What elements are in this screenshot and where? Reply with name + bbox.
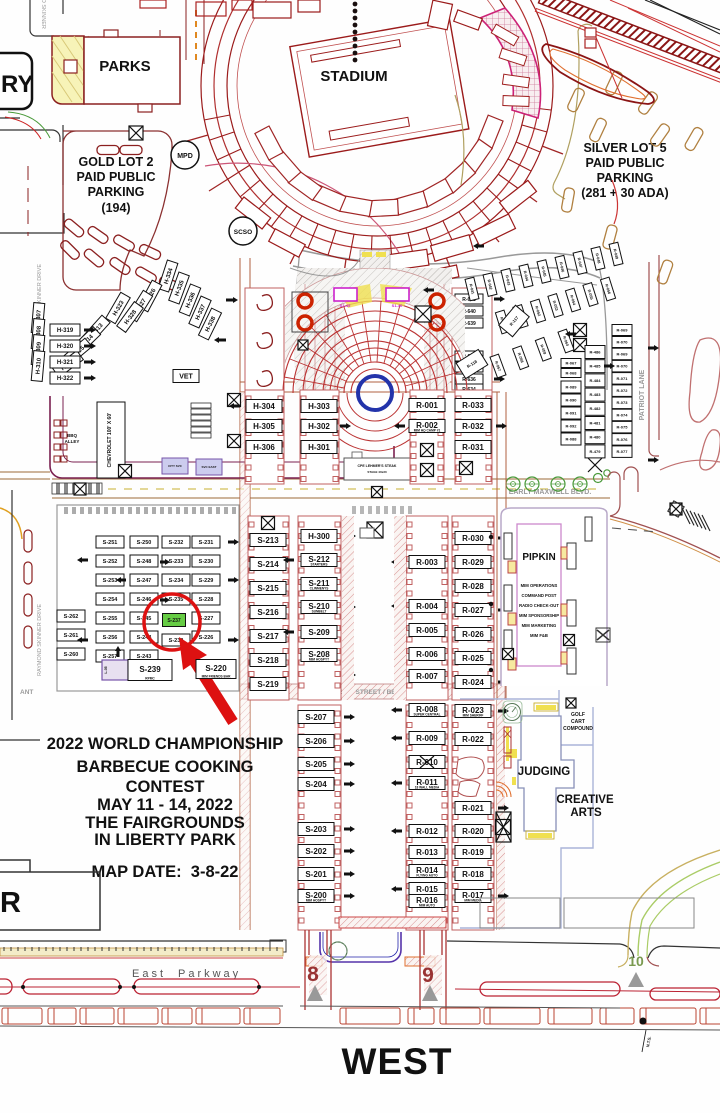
svg-text:PATRIOT LANE: PATRIOT LANE — [639, 369, 646, 420]
svg-text:SUNBELT: SUNBELT — [312, 610, 327, 614]
svg-text:R-484: R-484 — [590, 378, 602, 383]
svg-text:MAP DATE: 3-8-22: MAP DATE: 3-8-22 — [91, 863, 238, 881]
svg-text:S-253: S-253 — [103, 578, 118, 584]
svg-text:Parkway: Parkway — [178, 968, 241, 980]
svg-text:R-074: R-074 — [617, 412, 629, 417]
svg-text:SCSO: SCSO — [234, 229, 252, 236]
svg-text:R-073: R-073 — [617, 400, 629, 405]
svg-text:R-072: R-072 — [617, 388, 629, 393]
svg-text:GOLD LOT 2: GOLD LOT 2 — [79, 155, 154, 169]
svg-text:S-226: S-226 — [199, 635, 214, 641]
svg-text:MIM SHERIFF: MIM SHERIFF — [463, 714, 484, 718]
svg-text:S-217: S-217 — [257, 632, 279, 641]
svg-text:MIM HOSPYT: MIM HOSPYT — [306, 899, 326, 903]
svg-text:S-237: S-237 — [167, 618, 181, 624]
svg-text:CHEVROLET 100' X 60': CHEVROLET 100' X 60' — [107, 413, 113, 468]
svg-text:R-070: R-070 — [617, 339, 629, 344]
svg-text:RADIO CHECK-OUT: RADIO CHECK-OUT — [519, 603, 559, 608]
svg-text:R: R — [0, 887, 21, 919]
svg-text:8: 8 — [307, 963, 319, 986]
svg-text:MAY 11 - 14, 2022: MAY 11 - 14, 2022 — [97, 796, 233, 814]
svg-text:PARKING: PARKING — [88, 185, 145, 199]
svg-text:S-203: S-203 — [305, 825, 327, 834]
svg-text:R-069: R-069 — [617, 327, 629, 332]
svg-text:R-033: R-033 — [462, 401, 484, 410]
svg-text:S-247: S-247 — [137, 578, 152, 584]
svg-text:R-015: R-015 — [416, 885, 438, 894]
svg-text:(281 + 30 ADA): (281 + 30 ADA) — [581, 186, 668, 200]
svg-text:S-254: S-254 — [103, 597, 119, 603]
svg-text:R-028: R-028 — [462, 582, 484, 591]
svg-text:S-250: S-250 — [137, 540, 152, 546]
svg-text:S-204: S-204 — [305, 780, 327, 789]
svg-text:R-009: R-009 — [416, 734, 438, 743]
svg-text:EARLY MAXWELL BLVD.: EARLY MAXWELL BLVD. — [509, 489, 592, 496]
svg-text:MIM OPERATIONS: MIM OPERATIONS — [521, 583, 558, 588]
svg-text:(194): (194) — [101, 201, 130, 215]
svg-text:L-05: L-05 — [104, 666, 108, 673]
svg-text:THE FAIRGROUNDS: THE FAIRGROUNDS — [85, 814, 245, 832]
svg-text:MIM FRIENDS BAR: MIM FRIENDS BAR — [202, 675, 232, 679]
svg-text:H-301: H-301 — [308, 443, 330, 452]
svg-text:H-322: H-322 — [57, 376, 74, 382]
svg-text:RAYMOND SKINNER: RAYMOND SKINNER — [40, 0, 46, 29]
svg-text:S-234: S-234 — [169, 578, 185, 584]
svg-text:9: 9 — [422, 964, 434, 987]
svg-text:R-071: R-071 — [617, 376, 629, 381]
svg-text:S-239: S-239 — [139, 665, 161, 674]
svg-text:R-486: R-486 — [590, 349, 602, 354]
svg-text:CART: CART — [571, 719, 585, 725]
svg-text:VET: VET — [179, 374, 193, 381]
svg-text:S-219: S-219 — [257, 680, 279, 689]
svg-text:H-306: H-306 — [253, 443, 275, 452]
svg-text:R-027: R-027 — [462, 606, 484, 615]
svg-text:R-479: R-479 — [590, 449, 602, 454]
svg-text:MIM MARKETING: MIM MARKETING — [522, 623, 557, 628]
svg-text:R-022: R-022 — [462, 735, 484, 744]
svg-text:R-483: R-483 — [590, 392, 602, 397]
svg-text:R-076: R-076 — [617, 437, 629, 442]
svg-text:R-480: R-480 — [590, 435, 602, 440]
svg-text:RY: RY — [1, 71, 33, 98]
svg-text:S-228: S-228 — [199, 597, 214, 603]
svg-text:S-201: S-201 — [305, 870, 327, 879]
svg-text:S-206: S-206 — [305, 737, 327, 746]
svg-text:R-075: R-075 — [617, 425, 629, 430]
svg-text:S-230: S-230 — [199, 559, 214, 565]
svg-text:H-320: H-320 — [57, 344, 74, 350]
svg-text:S-256: S-256 — [103, 635, 118, 641]
svg-text:S-235: S-235 — [169, 597, 184, 603]
svg-text:R-077: R-077 — [617, 449, 629, 454]
svg-text:R-021: R-021 — [462, 804, 484, 813]
svg-text:S-233: S-233 — [169, 559, 184, 565]
svg-text:S-209: S-209 — [308, 628, 330, 637]
svg-text:S-260: S-260 — [64, 652, 79, 658]
svg-text:SVC EAST: SVC EAST — [201, 465, 216, 469]
svg-text:R-032: R-032 — [462, 422, 484, 431]
svg-text:East: East — [132, 968, 166, 980]
svg-text:S1-45: S1-45 — [340, 303, 351, 308]
svg-text:WEST: WEST — [342, 1041, 453, 1082]
svg-text:R-069: R-069 — [617, 351, 629, 356]
svg-text:S-257: S-257 — [103, 654, 118, 660]
svg-text:18 WALL MEDIA: 18 WALL MEDIA — [415, 786, 440, 790]
svg-text:R-636: R-636 — [462, 377, 476, 383]
svg-text:R-068: R-068 — [566, 370, 578, 375]
svg-text:SUPER CENTRAL: SUPER CENTRAL — [413, 713, 440, 717]
svg-text:PARKING: PARKING — [597, 171, 654, 185]
svg-text:BBQ: BBQ — [67, 433, 77, 438]
svg-text:S-255: S-255 — [103, 616, 118, 622]
svg-text:CONTEST: CONTEST — [126, 778, 205, 796]
svg-text:R-026: R-026 — [462, 630, 484, 639]
svg-text:S-214: S-214 — [257, 560, 279, 569]
svg-text:R-006: R-006 — [416, 650, 438, 659]
svg-text:R-030: R-030 — [462, 534, 484, 543]
svg-text:ALLEY: ALLEY — [65, 439, 80, 444]
svg-text:H-302: H-302 — [308, 422, 330, 431]
svg-text:R-012: R-012 — [416, 827, 438, 836]
svg-text:PIPKIN: PIPKIN — [522, 552, 555, 563]
svg-text:H-305: H-305 — [253, 422, 275, 431]
svg-text:H-304: H-304 — [253, 402, 275, 411]
svg-text:10: 10 — [628, 953, 644, 969]
svg-text:S-229: S-229 — [199, 578, 214, 584]
svg-text:S-215: S-215 — [257, 584, 279, 593]
svg-text:STARTERS: STARTERS — [311, 563, 328, 567]
svg-text:S-218: S-218 — [257, 656, 279, 665]
svg-text:RPMC: RPMC — [145, 677, 155, 681]
svg-text:R-089: R-089 — [566, 384, 578, 389]
svg-text:JUDGING: JUDGING — [518, 766, 570, 778]
svg-text:BARBECUE COOKING: BARBECUE COOKING — [77, 758, 254, 776]
svg-text:R-013: R-013 — [416, 848, 438, 857]
svg-text:R-007: R-007 — [416, 672, 438, 681]
svg-text:S-220: S-220 — [205, 664, 227, 673]
svg-text:R-481: R-481 — [590, 420, 602, 425]
svg-text:R-092: R-092 — [566, 423, 578, 428]
svg-text:MIM HQ CAMP #1: MIM HQ CAMP #1 — [414, 429, 441, 433]
svg-text:MPD: MPD — [177, 153, 193, 160]
svg-text:R-004: R-004 — [416, 602, 438, 611]
svg-text:STADIUM: STADIUM — [320, 68, 387, 85]
svg-text:ANT: ANT — [20, 689, 33, 696]
svg-text:R-091: R-091 — [566, 410, 578, 415]
svg-text:CPE LEHMER'S STEAK: CPE LEHMER'S STEAK — [358, 464, 397, 468]
svg-text:CLINMENYS: CLINMENYS — [310, 587, 329, 591]
svg-text:H-303: H-303 — [308, 402, 330, 411]
svg-text:COMMAND POST: COMMAND POST — [522, 593, 557, 598]
svg-text:MIM F&B: MIM F&B — [530, 633, 548, 638]
svg-text:R-029: R-029 — [462, 558, 484, 567]
svg-text:R-001: R-001 — [416, 401, 438, 410]
svg-text:2022 WORLD CHAMPIONSHIP: 2022 WORLD CHAMPIONSHIP — [47, 735, 284, 753]
svg-text:R-020: R-020 — [462, 827, 484, 836]
svg-text:H-319: H-319 — [57, 328, 74, 334]
svg-text:GOLF: GOLF — [571, 712, 585, 718]
svg-text:CITY SVC: CITY SVC — [168, 464, 183, 468]
svg-text:S-216: S-216 — [257, 608, 279, 617]
svg-text:MIM SPONSORSHIP: MIM SPONSORSHIP — [519, 613, 559, 618]
svg-text:COMPOUND: COMPOUND — [563, 726, 593, 732]
svg-text:R-485: R-485 — [590, 364, 602, 369]
svg-text:S-246: S-246 — [137, 597, 152, 603]
svg-text:S-251: S-251 — [103, 540, 118, 546]
svg-text:R-024: R-024 — [462, 678, 484, 687]
svg-text:S-232: S-232 — [169, 540, 184, 546]
svg-text:FLYING AUTO: FLYING AUTO — [416, 874, 438, 878]
svg-text:R-018: R-018 — [462, 870, 484, 879]
svg-text:S-231: S-231 — [199, 540, 214, 546]
svg-text:R-031: R-031 — [462, 443, 484, 452]
svg-text:R-019: R-019 — [462, 848, 484, 857]
svg-text:S-262: S-262 — [64, 614, 79, 620]
svg-text:S-248: S-248 — [137, 559, 152, 565]
svg-text:H-300: H-300 — [308, 532, 330, 541]
svg-text:R-003: R-003 — [416, 558, 438, 567]
svg-text:R-482: R-482 — [590, 406, 602, 411]
svg-text:RAYMOND SKINNER DRIVE: RAYMOND SKINNER DRIVE — [37, 604, 43, 676]
svg-text:STAGE 40x30: STAGE 40x30 — [367, 470, 387, 474]
svg-text:ARTS: ARTS — [570, 807, 602, 819]
svg-text:PARKS: PARKS — [99, 58, 150, 75]
svg-text:S-207: S-207 — [305, 713, 327, 722]
svg-text:R-088: R-088 — [566, 436, 578, 441]
svg-text:S-252: S-252 — [103, 559, 118, 565]
svg-text:S-205: S-205 — [305, 760, 327, 769]
svg-text:R-005: R-005 — [416, 626, 438, 635]
svg-text:MIM HOSPYT: MIM HOSPYT — [309, 658, 329, 662]
svg-text:IN LIBERTY PARK: IN LIBERTY PARK — [94, 831, 236, 849]
svg-text:R-067: R-067 — [566, 360, 578, 365]
svg-text:CREATIVE: CREATIVE — [556, 794, 614, 806]
svg-text:PAID PUBLIC: PAID PUBLIC — [77, 170, 156, 184]
svg-text:S-202: S-202 — [305, 847, 327, 856]
svg-text:SILVER LOT 5: SILVER LOT 5 — [583, 141, 666, 155]
svg-text:MIM AUTO: MIM AUTO — [419, 904, 435, 908]
svg-text:PAID PUBLIC: PAID PUBLIC — [586, 156, 665, 170]
svg-text:S-261: S-261 — [64, 633, 79, 639]
svg-text:H-321: H-321 — [57, 360, 74, 366]
svg-text:R-090: R-090 — [566, 397, 578, 402]
svg-text:R-025: R-025 — [462, 654, 484, 663]
svg-text:R-070: R-070 — [617, 364, 629, 369]
svg-text:S1-46: S1-46 — [392, 303, 403, 308]
svg-text:S-213: S-213 — [257, 536, 279, 545]
